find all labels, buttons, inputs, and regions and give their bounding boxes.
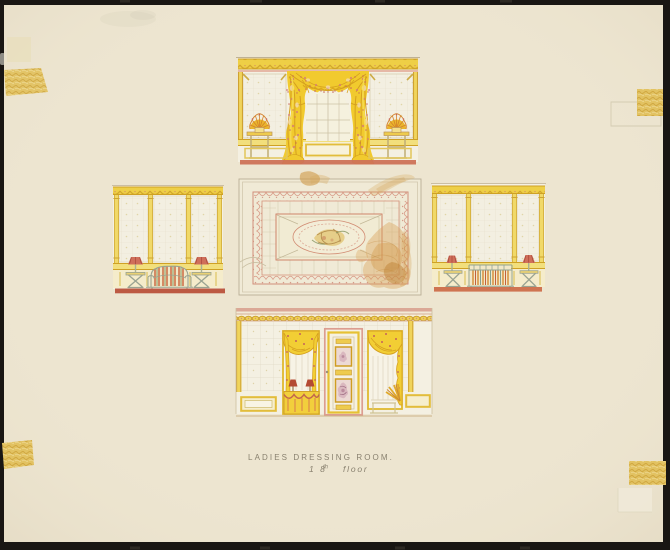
svg-text:LADIES DRESSING ROOM.: LADIES DRESSING ROOM. <box>248 453 394 462</box>
svg-text:floor: floor <box>343 464 369 474</box>
svg-text:th: th <box>323 465 329 471</box>
